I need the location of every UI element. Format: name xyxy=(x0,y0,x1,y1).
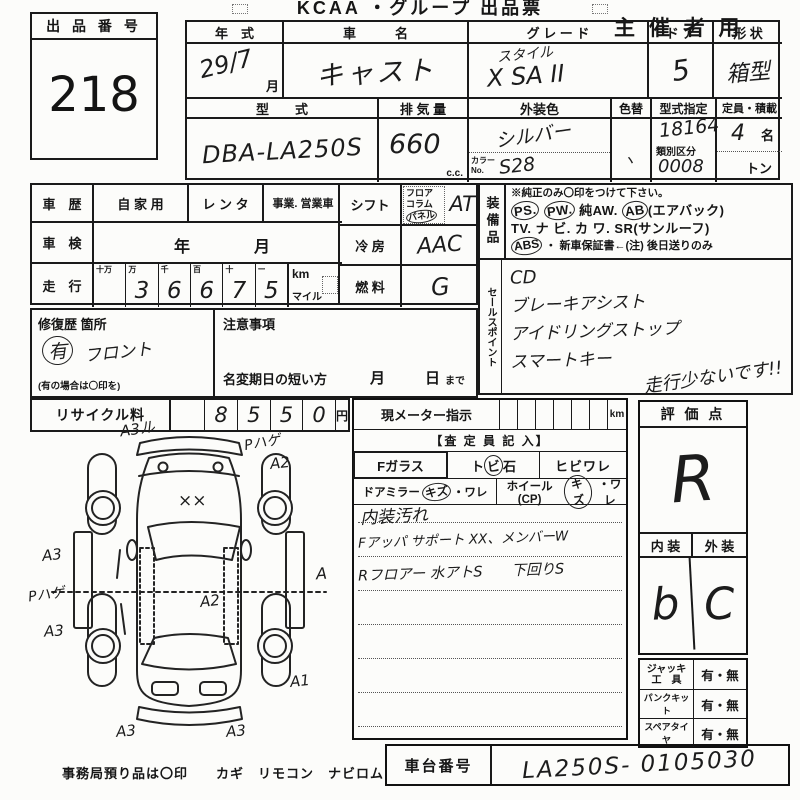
exterior-score: C xyxy=(691,557,749,653)
mileage-digit: 6 xyxy=(191,274,222,307)
assessor-entry-label: 【査 定 員 記 入】 xyxy=(354,430,626,452)
grade-line2: X SA II xyxy=(486,59,565,92)
year-cell: 29/7 月 xyxy=(187,44,282,97)
vehicle-table: 年 式 車 名 グ レ ー ド ド ア 形 状 29/7 月 キャスト スタイル… xyxy=(185,20,780,180)
name-cell: キャスト xyxy=(282,44,467,97)
caution-box: 注意事項 名変期日の短い方 月 日 まで xyxy=(215,308,478,398)
mileage-digit: 7 xyxy=(223,274,254,307)
lot-number-label: 出 品 番 号 xyxy=(32,14,156,40)
equipment-tv: TV. xyxy=(511,221,532,236)
front-glass-crack: ヒビワレ xyxy=(540,452,626,478)
hand-stroke xyxy=(121,604,125,634)
meter-digit-cell xyxy=(554,400,572,429)
inspection-year: 年 xyxy=(174,233,190,257)
car-name-value: キャスト xyxy=(315,48,437,93)
repair-history-label: 修復歴 箇所 xyxy=(38,314,107,333)
diagram-annotation: A2 xyxy=(269,453,291,473)
displacement-value: 660 xyxy=(389,129,441,160)
displacement-unit: c.c. xyxy=(446,168,463,179)
jack-tools-label: ジャッキ工 具 xyxy=(640,660,694,689)
right-mirror xyxy=(241,540,251,560)
left-mirror xyxy=(127,540,137,560)
capacity-cell: 4 名 トン xyxy=(715,119,782,182)
inspection-month: 月 xyxy=(254,233,270,257)
equipment-sr: SR(サンルーフ) xyxy=(614,221,709,236)
front-bumper xyxy=(137,437,242,455)
year-header: 年 式 xyxy=(187,22,282,44)
door-header: ド ア xyxy=(647,22,712,44)
mileage-unit-checkbox xyxy=(322,276,338,294)
header-dotted-box-left xyxy=(232,4,248,14)
meter-digit-cell xyxy=(590,400,608,429)
mileage-digit: 3 xyxy=(126,274,157,307)
capacity-unit: 名 xyxy=(761,125,774,144)
equipment-note: ※純正のみ〇印をつけて下さい。 xyxy=(511,187,786,201)
ac-value: AAC xyxy=(416,231,463,259)
assessor-table: 現メーター指示 km 【査 定 員 記 入】 Fガラス トビ石 ヒビワレ ドアミ… xyxy=(352,398,628,740)
mileage-unit-mile: マイル xyxy=(292,288,322,303)
meter-digit-cell xyxy=(500,400,518,429)
hand-stroke xyxy=(117,550,120,578)
type-designation-cell: 18164 類別区分 0008 xyxy=(650,119,715,182)
assessor-note: 内装汚れ xyxy=(359,500,428,529)
equipment-box: 装備品 ※純正のみ〇印をつけて下さい。 PS. PW. 純AW. AB(エアバッ… xyxy=(478,183,793,260)
grade-header: グ レ ー ド xyxy=(467,22,647,44)
mileage-unit-cell: km マイル xyxy=(287,264,342,307)
equipment-ab-note: (エアバック) xyxy=(648,203,725,218)
grade-cell: スタイル X SA II xyxy=(467,44,647,97)
equipment-ps: PS. xyxy=(510,199,541,221)
sales-points-label: セールスポイント xyxy=(480,260,502,393)
year-unit: 月 xyxy=(266,76,279,95)
auction-sheet: KCAA ・グループ 出品票 主 催 者 用 出 品 番 号 218 年 式 車… xyxy=(0,0,800,800)
diagram-annotation: A3 xyxy=(43,621,64,640)
shift-option-panel: パネル xyxy=(405,208,437,224)
assessor-note: Rフロアー 水アトS 下回りS xyxy=(358,557,565,585)
displacement-header: 排 気 量 xyxy=(377,97,467,119)
year-value: 29/7 xyxy=(196,44,255,84)
inspection-cell: 年 月 xyxy=(92,223,342,264)
lot-number-value: 218 xyxy=(32,40,156,150)
rear-window xyxy=(142,634,236,670)
color-cell: シルバー カラー No. S28 xyxy=(467,119,610,182)
shift-cell: フロア コラム パネル AT xyxy=(400,185,478,226)
meter-digit-cell xyxy=(572,400,590,429)
history-rental: レ ン タ xyxy=(187,185,262,223)
score-value: R xyxy=(637,424,750,535)
fuel-value: G xyxy=(430,272,451,302)
interior-score: b xyxy=(638,557,696,653)
history-private: 自 家 用 xyxy=(92,185,187,223)
lot-number-box: 出 品 番 号 218 xyxy=(30,12,158,160)
ac-label: 冷 房 xyxy=(340,226,400,266)
caution-day-suffix: まで xyxy=(445,372,465,387)
mileage-digit xyxy=(94,276,125,307)
diagram-annotation: A1 xyxy=(289,671,311,691)
jack-tools-value: 有・無 xyxy=(694,660,746,689)
mileage-unit-km: km xyxy=(292,267,309,281)
color-value: シルバー xyxy=(493,116,572,153)
door-value: 5 xyxy=(669,53,691,88)
diagram-annotation: A2 xyxy=(199,591,221,611)
left-sill-panel xyxy=(74,532,92,628)
office-items-note: 事務局預り品は〇印 カギ リモコン ナビロム xyxy=(62,763,384,782)
meter-digit-cell xyxy=(518,400,536,429)
diagram-annotation: A3 xyxy=(41,545,63,565)
header-dotted-box-right xyxy=(592,4,608,14)
caution-day: 日 xyxy=(425,367,440,388)
fuel-label: 燃 料 xyxy=(340,266,400,307)
shift-value: AT xyxy=(449,192,475,216)
type-designation-value: 18164 xyxy=(658,114,720,142)
exterior-label: 外 装 xyxy=(693,534,746,556)
history-business: 事業. 営業車 xyxy=(262,185,342,223)
windshield xyxy=(148,522,240,560)
shift-option-floor: フロア xyxy=(406,188,442,199)
spare-tire-label: スペアタイヤ xyxy=(640,719,694,747)
diagram-annotation: A xyxy=(315,564,327,584)
equipment-pw: PW. xyxy=(543,199,576,222)
mirror-scratch-circled: キズ xyxy=(421,481,452,502)
shift-option-column: コラム xyxy=(406,199,442,210)
score-label: 評 価 点 xyxy=(640,402,746,428)
mileage-label: 走 行 xyxy=(32,264,92,307)
model-cell: DBA-LA250S xyxy=(187,119,377,182)
wheel-row: ホイール(CP) キズ・ワレ xyxy=(497,479,626,504)
spare-tire-value: 有・無 xyxy=(694,719,746,747)
model-header: 型 式 xyxy=(187,97,377,119)
assessor-note: Fアッパ サポート XX、メンバーW xyxy=(358,524,569,551)
stone-chip-circled: ビ xyxy=(483,453,504,476)
form-title: KCAA ・グループ 出品票 xyxy=(297,0,543,18)
diagram-annotation: A3 xyxy=(225,721,246,741)
shift-label: シフト xyxy=(340,185,400,226)
equipment-warranty: ・ 新車保証書←(注) 後日送りのみ xyxy=(545,240,712,252)
score-box: 評 価 点 R 内 装 外 装 b C xyxy=(638,400,748,655)
mileage-digits: 十万 万 3 千 6 百 6 十 7 ー 5 xyxy=(92,264,287,307)
capacity-value: 4 xyxy=(731,121,745,146)
load-unit: トン xyxy=(746,158,772,177)
repair-history-text: フロント xyxy=(83,335,153,367)
shape-value: 箱型 xyxy=(725,53,772,89)
displacement-cell: 660 c.c. xyxy=(377,119,467,182)
recolor-header: 色替 xyxy=(610,97,650,119)
mileage-digit: 6 xyxy=(159,274,190,307)
chassis-value: LA250S- 0105030 xyxy=(522,746,758,784)
puncture-kit-value: 有・無 xyxy=(694,690,746,718)
recolor-mark: ヽ xyxy=(622,150,636,170)
name-header: 車 名 xyxy=(282,22,467,44)
class-value: 0008 xyxy=(658,156,704,177)
caution-line: 名変期日の短い方 xyxy=(223,369,327,388)
meter-digit-cell xyxy=(536,400,554,429)
car-diagram: ×× A3ル Pハゲ A2 A3 Pハゲ A3 A2 A A1 A3 A3 xyxy=(28,424,350,742)
fuel-cell: G xyxy=(400,266,478,307)
color-no-label2: No. xyxy=(471,166,484,175)
equipment-navi: ナ ビ. xyxy=(536,221,571,236)
shape-header: 形 状 xyxy=(712,22,782,44)
tools-box: ジャッキ工 具 有・無 パンクキット 有・無 スペアタイヤ 有・無 xyxy=(638,658,748,748)
chassis-box: 車台番号 LA250S- 0105030 xyxy=(385,744,790,786)
caution-month: 月 xyxy=(370,367,385,388)
chassis-label: 車台番号 xyxy=(387,746,492,784)
equipment-abs: ABS xyxy=(510,235,543,257)
right-sill-panel xyxy=(286,532,304,628)
shape-cell: 箱型 xyxy=(712,44,782,97)
equipment-ab: AB xyxy=(621,199,649,221)
capacity-header: 定員・積載 xyxy=(715,97,782,119)
sales-points-box: セールスポイント CD ブレーキアシスト アイドリングストップ スマートキー 走… xyxy=(478,260,793,395)
history-table: 車 歴 自 家 用 レ ン タ 事業. 営業車 車 検 年 月 走 行 十万 万… xyxy=(30,183,340,305)
equipment-aw: 純AW. xyxy=(579,203,618,218)
repair-history-note: (有の場合は〇印を) xyxy=(38,378,120,392)
front-glass-stone-chip: トビ石 xyxy=(448,452,540,478)
repair-history-mark: 有 xyxy=(41,335,74,367)
car-top-view: ×× xyxy=(28,424,350,742)
mileage-digit: 5 xyxy=(256,274,287,307)
color-header: 外装色 xyxy=(467,97,610,119)
ac-cell: AAC xyxy=(400,226,478,266)
diagram-annotation: A3 xyxy=(115,721,136,741)
meter-label: 現メーター指示 xyxy=(354,400,500,429)
equipment-leather: カ ワ. xyxy=(575,221,610,236)
model-value: DBA-LA250S xyxy=(201,132,363,168)
color-no-label: カラー xyxy=(471,155,495,166)
mileage-digit-label: 十万 xyxy=(96,264,112,275)
front-glass-label: Fガラス xyxy=(353,451,448,479)
inspection-label: 車 検 xyxy=(32,223,92,264)
meter-unit: km xyxy=(608,400,626,429)
equipment-label: 装備品 xyxy=(480,185,506,258)
hood-damage-mark: ×× xyxy=(178,491,207,511)
puncture-kit-label: パンクキット xyxy=(640,690,694,718)
shift-table: シフト フロア コラム パネル AT 冷 房 AAC 燃 料 G xyxy=(340,183,478,305)
caution-label: 注意事項 xyxy=(223,314,275,333)
repair-history-box: 修復歴 箇所 有 フロント (有の場合は〇印を) xyxy=(30,308,215,398)
color-no-value: S28 xyxy=(498,153,536,179)
recolor-cell: ヽ xyxy=(610,119,650,182)
history-label: 車 歴 xyxy=(32,185,92,223)
assessor-notes-area: 内装汚れ Fアッパ サポート XX、メンバーW Rフロアー 水アトS 下回りS xyxy=(354,505,626,736)
interior-label: 内 装 xyxy=(640,534,693,556)
door-cell: 5 xyxy=(647,44,712,97)
